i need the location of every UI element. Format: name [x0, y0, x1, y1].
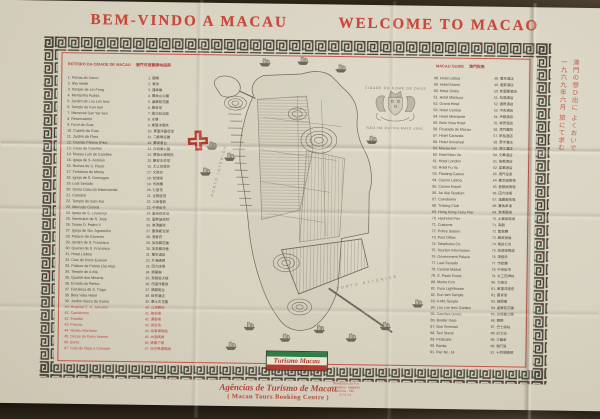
photo-backdrop: PORTO INTERIOR PORTO EXTERIOR CIDADE DO …: [0, 0, 600, 419]
right-index-list: 48. Hotel Lisboa48. 葡京酒店49. Hotel Estori…: [430, 75, 530, 363]
left-index-header: ROTEIRO DA CIDADE DE MACAU 澳門市遊覽勝地指南: [68, 62, 196, 76]
map-poster: PORTO INTERIOR PORTO EXTERIOR CIDADE DO …: [0, 0, 600, 411]
turismo-macau-logo: Turismo Macau: [266, 351, 328, 372]
right-index-title-zh: 澳門指南: [469, 64, 485, 69]
left-index-title-zh: 澳門市遊覽勝地指南: [136, 63, 171, 68]
inner-harbour-label: PORTO INTERIOR: [210, 145, 227, 197]
outer-harbour-label: PORTO EXTERIOR: [336, 274, 398, 290]
title-portuguese: BEM-VINDO A MACAU: [90, 12, 250, 31]
left-index-list: 1. Portas do Cerco1. 關閘2. Ilha Verde2. 青…: [64, 75, 196, 360]
index-row: 91. Pier No. 1491. 十四號碼頭: [430, 349, 526, 357]
agency-name-en: ( Macau Tours Booking Centre ): [227, 393, 329, 401]
title-english: WELCOME TO MACAO: [338, 16, 504, 35]
left-index-title-pt: ROTEIRO DA CIDADE DE MACAU: [68, 62, 131, 68]
index-row: 47. Cais da Taipa e Coloane47. 氹仔路環碼頭: [64, 345, 192, 353]
margin-note-line: 一九六九年六月 旅にて求む: [555, 58, 567, 151]
agency-contact-block: TRAVESSA DO P. 9AVENIDA A. RIBEIROMACAU …: [315, 382, 375, 413]
handwritten-margin-note: 澳門の想ひ出に よくおいで一九六九年六月 旅にて求む: [551, 58, 580, 194]
right-index-title-en: MACAU GUIDE: [436, 64, 464, 69]
logo-red-stripe: [267, 365, 327, 371]
macau-coat-of-arms: CIDADE DO NOME DE DEUS NÃO HÁ OUTRA MAIS…: [364, 86, 426, 131]
contact-line: 5 7 5 7 5: [315, 393, 375, 398]
city-title-label: CIDADE DO NOME DE DEUS: [365, 86, 426, 91]
motto-label: NÃO HÁ OUTRA MAIS LEAL: [366, 125, 423, 131]
